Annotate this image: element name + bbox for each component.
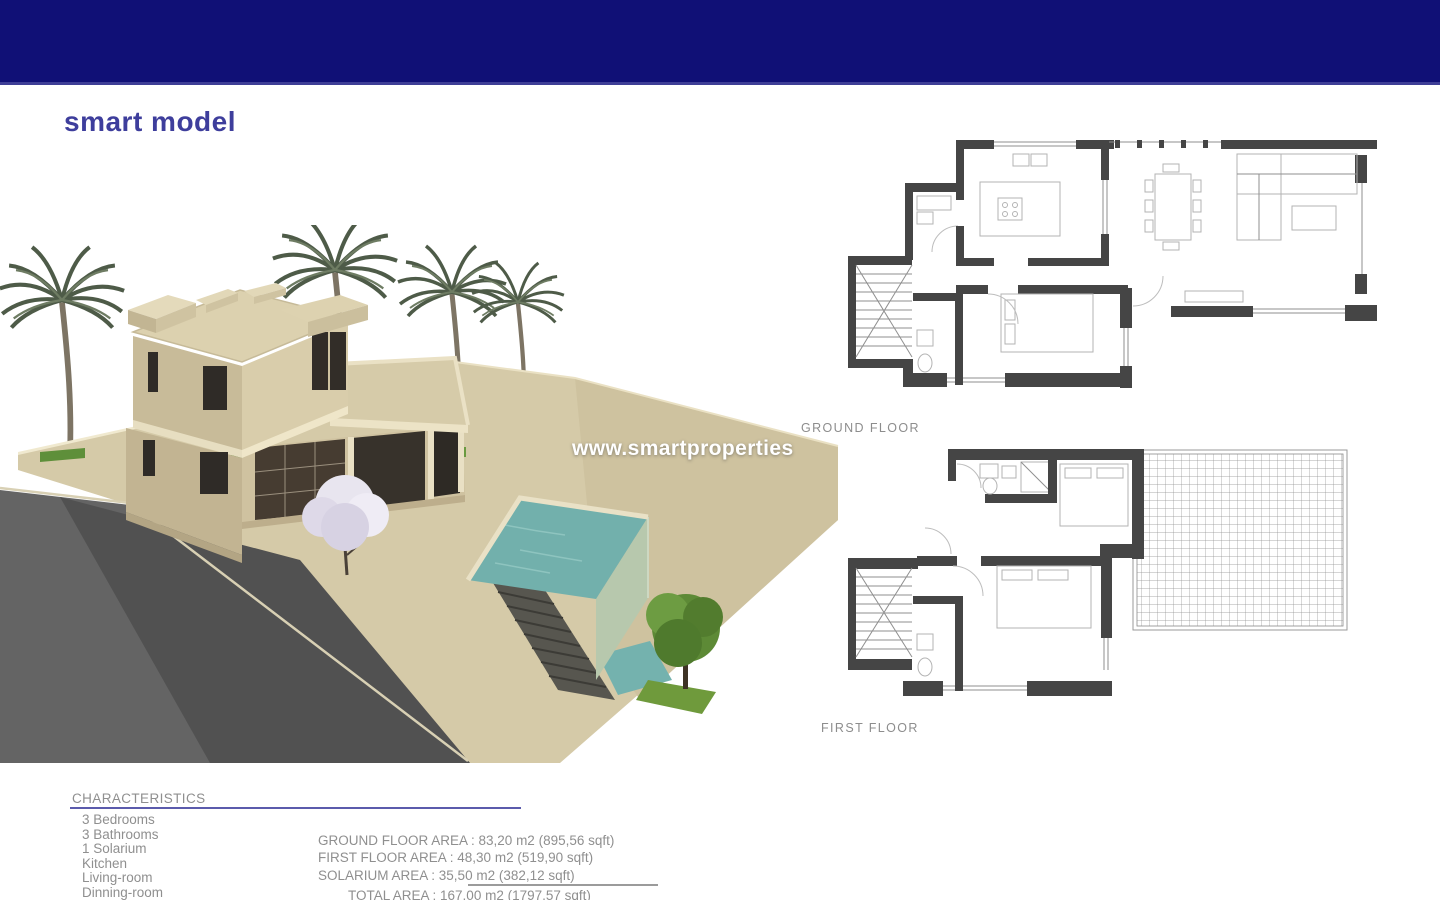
villa-render [0,225,840,765]
header-bar [0,0,1440,85]
stairs [848,256,912,368]
landing [917,528,1103,566]
entry-nook [905,183,958,260]
characteristics-title: CHARACTERISTICS [72,791,206,806]
room-item: Dinning-room [82,886,163,900]
watermark: www.smartproperties [572,437,794,461]
area-line: SOLARIUM AREA : 35,50 m2 (382,12 sqft) [318,867,614,884]
area-line: GROUND FLOOR AREA : 83,20 m2 (895,56 sqf… [318,832,614,849]
living-room [1109,140,1377,321]
lower-bathroom [913,596,963,691]
bathroom [913,293,963,385]
room-item: 1 Solarium [82,842,163,857]
villa-render-graphic [0,225,840,765]
upper-bathroom [948,449,1055,503]
stairs [848,558,918,670]
characteristics-underline [70,807,521,809]
room-item: 3 Bathrooms [82,828,163,843]
first-floor-label: FIRST FLOOR [821,721,919,735]
ground-floor-plan [845,138,1380,393]
area-list: GROUND FLOOR AREA : 83,20 m2 (895,56 sqf… [318,832,614,884]
room-item: Kitchen [82,857,163,872]
room-item: 3 Bedrooms [82,813,163,828]
bedroom-two [903,556,1112,696]
first-floor-plan [845,444,1380,709]
bedroom-one [1048,449,1144,559]
total-rule [468,884,658,886]
room-item: Living-room [82,871,163,886]
total-area: TOTAL AREA : 167,00 m2 (1797,57 sqft) [348,888,591,900]
brand-logo: smart model [64,106,236,138]
area-line: FIRST FLOOR AREA : 48,30 m2 (519,90 sqft… [318,849,614,866]
terrace-solarium [1133,450,1347,630]
property-sheet-page: smart model [0,0,1440,900]
first-floor-plan-graphic [845,444,1380,709]
ground-floor-plan-graphic [845,138,1380,393]
ground-floor-label: GROUND FLOOR [801,421,920,435]
room-list: 3 Bedrooms 3 Bathrooms 1 Solarium Kitche… [82,813,163,900]
kitchen [956,140,1114,266]
